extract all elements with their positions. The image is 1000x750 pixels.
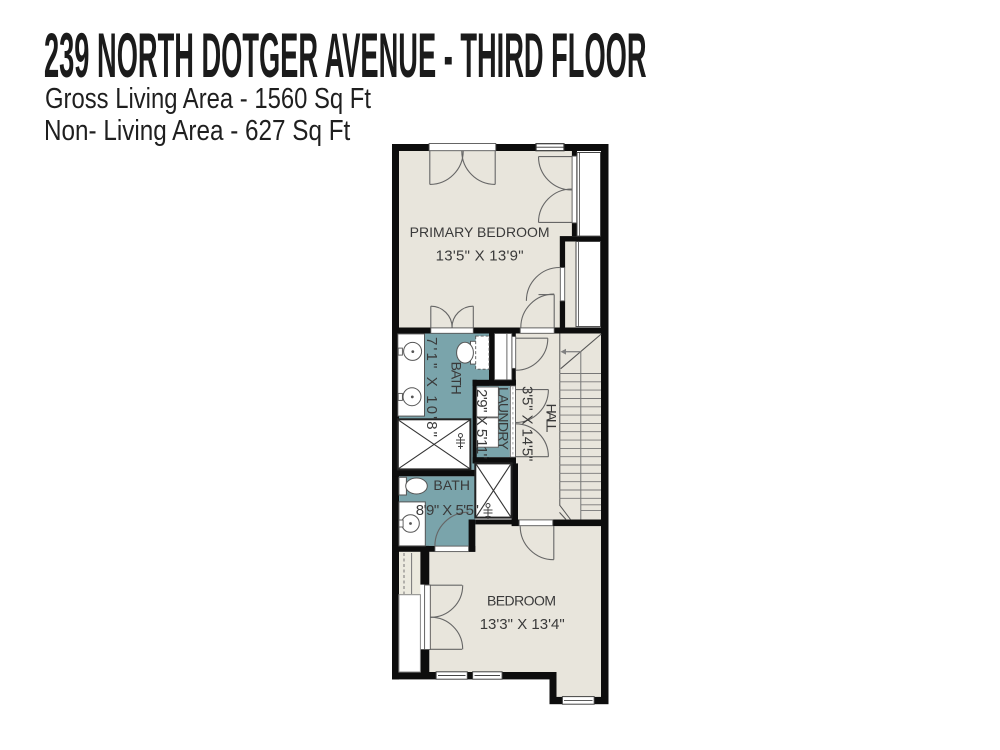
svg-text:13'5" X 13'9": 13'5" X 13'9" [436, 248, 524, 265]
svg-text:HALL: HALL [543, 404, 559, 433]
svg-text:PRIMARY BEDROOM: PRIMARY BEDROOM [410, 224, 550, 240]
svg-text:13'3" X 13'4": 13'3" X 13'4" [480, 616, 565, 633]
svg-text:BATH: BATH [449, 362, 465, 395]
svg-text:BEDROOM: BEDROOM [487, 593, 556, 609]
svg-text:3'5" X 14'5": 3'5" X 14'5" [518, 386, 535, 461]
svg-text:8'9" X 5'5": 8'9" X 5'5" [416, 502, 479, 519]
svg-text:2'9" X 5'11": 2'9" X 5'11" [473, 389, 490, 459]
svg-text:LAUNDRY: LAUNDRY [496, 387, 512, 451]
svg-text:BATH: BATH [433, 477, 470, 493]
